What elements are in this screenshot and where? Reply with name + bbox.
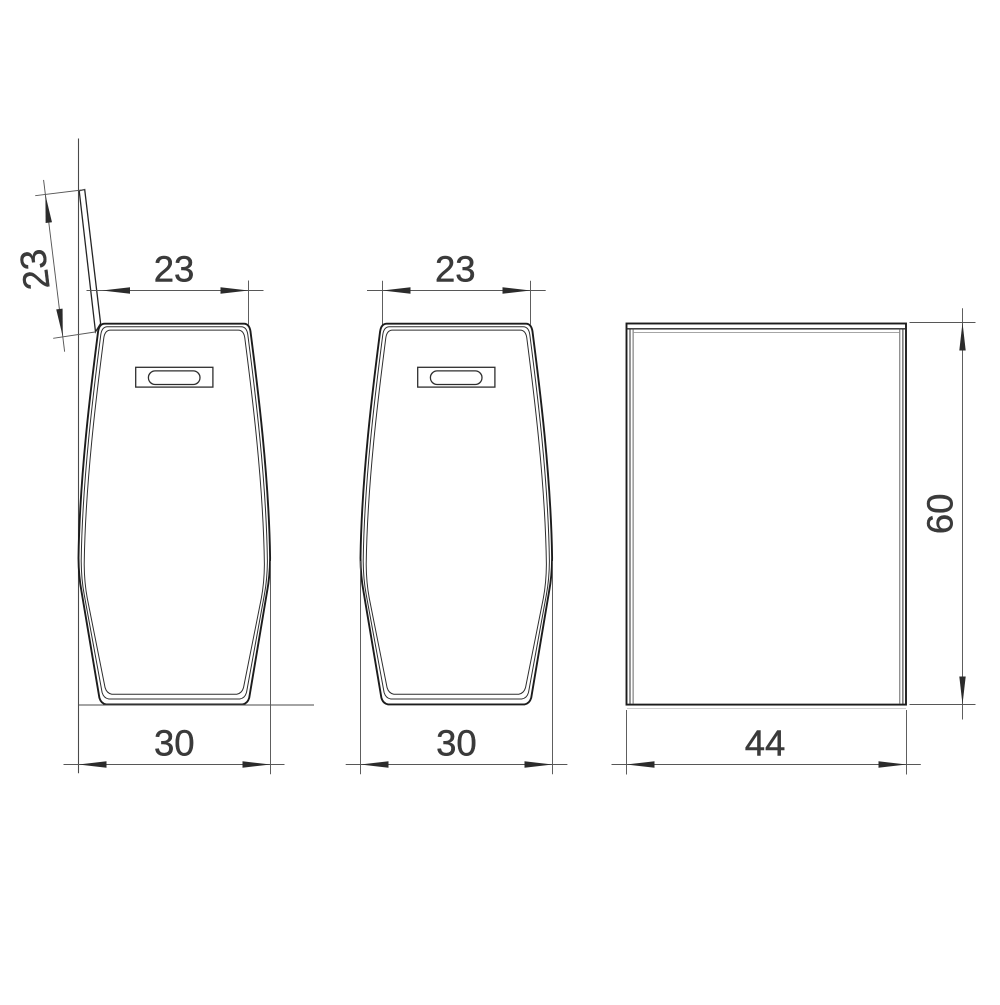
svg-text:23: 23 [154,248,195,289]
svg-text:44: 44 [745,722,786,763]
svg-text:23: 23 [12,247,58,292]
svg-text:60: 60 [919,493,960,534]
svg-text:23: 23 [435,248,476,289]
svg-text:30: 30 [436,722,477,763]
svg-text:30: 30 [154,722,195,763]
